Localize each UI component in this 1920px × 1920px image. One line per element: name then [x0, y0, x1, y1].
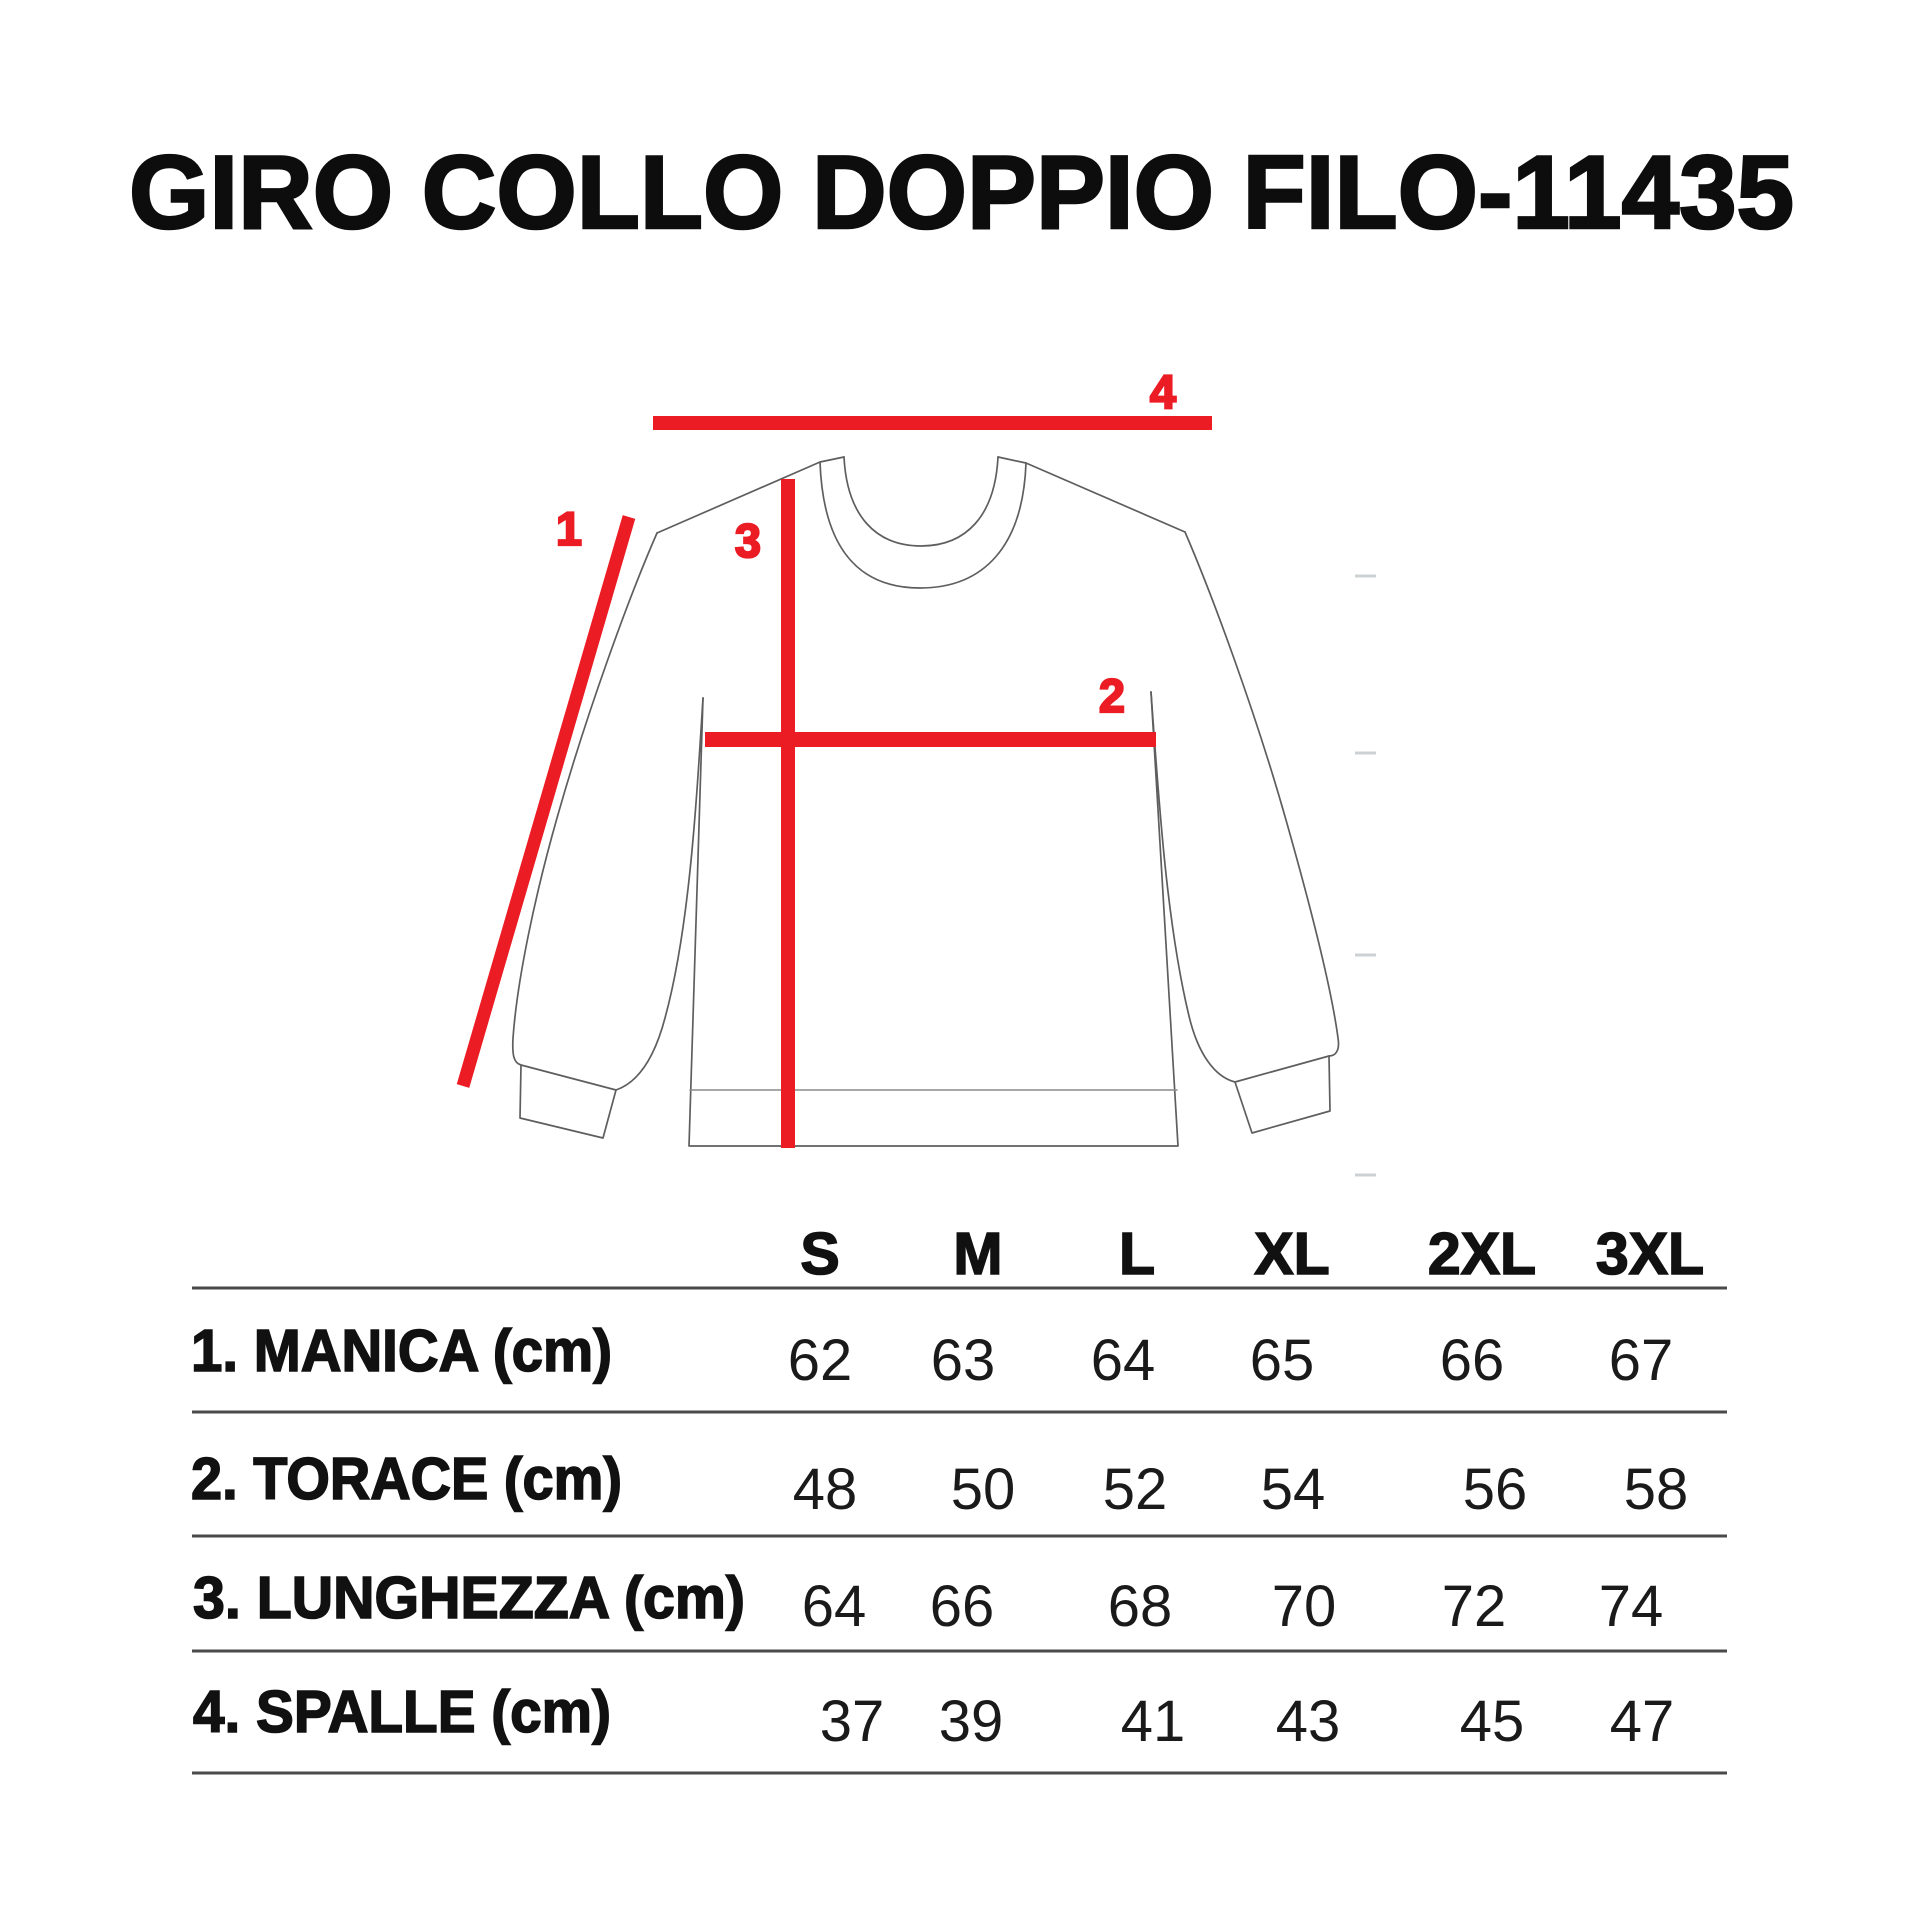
svg-text:68: 68	[1108, 1574, 1173, 1639]
svg-text:58: 58	[1624, 1457, 1689, 1522]
svg-text:3XL: 3XL	[1596, 1221, 1704, 1287]
svg-text:64: 64	[802, 1574, 867, 1639]
svg-text:GIRO COLLO DOPPIO FILO-11435: GIRO COLLO DOPPIO FILO-11435	[129, 135, 1794, 251]
svg-text:XL: XL	[1254, 1221, 1329, 1287]
svg-text:66: 66	[1440, 1328, 1505, 1393]
svg-text:52: 52	[1103, 1457, 1168, 1522]
svg-text:39: 39	[939, 1689, 1004, 1754]
svg-text:3: 3	[735, 514, 761, 567]
svg-text:2. TORACE (cm): 2. TORACE (cm)	[191, 1446, 622, 1512]
svg-text:45: 45	[1460, 1689, 1525, 1754]
svg-text:70: 70	[1272, 1574, 1337, 1639]
svg-text:62: 62	[788, 1328, 853, 1393]
svg-text:56: 56	[1463, 1457, 1528, 1522]
svg-text:47: 47	[1610, 1689, 1675, 1754]
svg-text:2: 2	[1099, 669, 1125, 722]
svg-text:4: 4	[1150, 365, 1176, 418]
svg-text:72: 72	[1442, 1574, 1507, 1639]
svg-text:64: 64	[1091, 1328, 1156, 1393]
svg-text:S: S	[800, 1221, 839, 1287]
svg-text:74: 74	[1599, 1574, 1664, 1639]
svg-text:L: L	[1119, 1221, 1155, 1287]
svg-text:50: 50	[951, 1457, 1016, 1522]
svg-text:41: 41	[1121, 1689, 1186, 1754]
svg-text:1: 1	[556, 502, 582, 555]
svg-text:M: M	[953, 1221, 1002, 1287]
svg-text:1. MANICA (cm): 1. MANICA (cm)	[191, 1318, 612, 1384]
svg-text:63: 63	[931, 1328, 996, 1393]
svg-text:65: 65	[1250, 1328, 1315, 1393]
svg-text:66: 66	[930, 1574, 995, 1639]
svg-text:2XL: 2XL	[1428, 1221, 1536, 1287]
svg-text:43: 43	[1276, 1689, 1341, 1754]
svg-text:3. LUNGHEZZA (cm): 3. LUNGHEZZA (cm)	[193, 1565, 745, 1631]
svg-text:54: 54	[1261, 1457, 1326, 1522]
svg-text:37: 37	[820, 1689, 885, 1754]
svg-text:48: 48	[793, 1457, 858, 1522]
svg-text:67: 67	[1609, 1328, 1674, 1393]
svg-text:4. SPALLE (cm): 4. SPALLE (cm)	[193, 1679, 611, 1745]
